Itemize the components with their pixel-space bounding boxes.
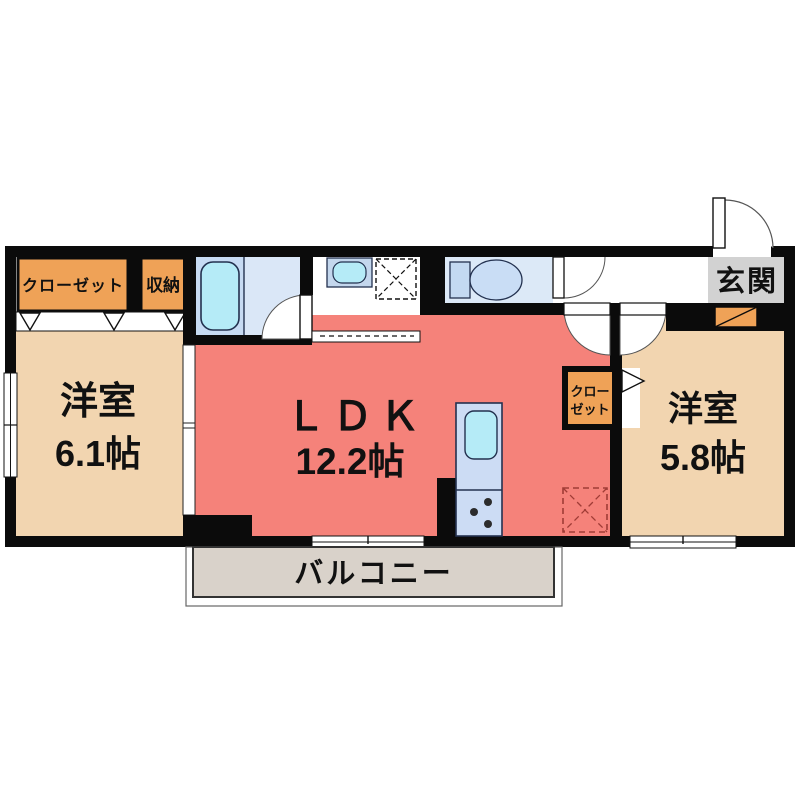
kitchen-wall-stub xyxy=(437,478,456,536)
sliding-door-panel xyxy=(183,345,195,515)
ldk-door-leaf xyxy=(564,303,610,315)
balcony-label: バルコニー xyxy=(294,558,453,590)
toilet-bowl xyxy=(470,260,522,300)
entrance-step-icon xyxy=(715,307,757,327)
stove-burner-icon xyxy=(484,498,492,506)
bedroom-right-size: 5.8帖 xyxy=(660,437,746,478)
stove-burner-icon xyxy=(484,520,492,528)
bedroom-right-label: 洋室 xyxy=(668,389,738,429)
bathroom xyxy=(196,257,313,345)
closet-folding-door-icon xyxy=(16,312,185,331)
closet-small: クロー ゼット xyxy=(562,366,644,430)
entrance-label: 玄関 xyxy=(716,264,778,298)
window-bedroom-right-bottom-icon xyxy=(630,536,736,548)
entrance-door-leaf-icon xyxy=(713,198,725,248)
floor-plan-image: クローゼット 収納 xyxy=(0,0,800,800)
ldk-size: 12.2帖 xyxy=(295,441,404,482)
washroom-sliding-door-icon xyxy=(312,331,420,342)
balcony: バルコニー xyxy=(186,547,562,606)
washbasin-sink xyxy=(333,262,366,283)
closet-small-label-1: クロー xyxy=(570,384,609,399)
toilet-icon xyxy=(450,260,522,300)
window-left-icon xyxy=(4,373,17,477)
closet-small-label-2: ゼット xyxy=(570,402,609,417)
bathroom-door-leaf xyxy=(300,295,312,339)
bedroom-left-label: 洋室 xyxy=(60,380,136,423)
bedroom-right-door-leaf xyxy=(620,303,666,315)
kitchen-counter-icon xyxy=(456,403,502,536)
folding-door-strip xyxy=(16,312,185,331)
toilet-tank xyxy=(450,262,470,298)
wall-bedroom-bath xyxy=(183,246,196,345)
bedroom-left-size: 6.1帖 xyxy=(55,433,141,474)
bathroom-door-wall-stub xyxy=(300,257,313,295)
stove-burner-icon xyxy=(470,508,478,516)
floor-plan-svg: クローゼット 収納 xyxy=(0,0,800,800)
kitchen-sink-icon xyxy=(465,411,497,459)
sliding-door-bedroom-ldk-icon xyxy=(183,345,195,515)
closet-main-label: クローゼット xyxy=(22,276,124,295)
closet-row: クローゼット 収納 xyxy=(16,255,185,331)
toilet-door-leaf xyxy=(553,257,564,298)
toilet-bottom-wall xyxy=(420,303,565,315)
wall-jog-bottom xyxy=(183,515,252,540)
storage-label: 収納 xyxy=(146,275,180,295)
ldk-label: ＬＤＫ xyxy=(286,395,427,439)
bathtub-icon xyxy=(201,262,239,330)
washbasin-icon xyxy=(327,258,372,287)
